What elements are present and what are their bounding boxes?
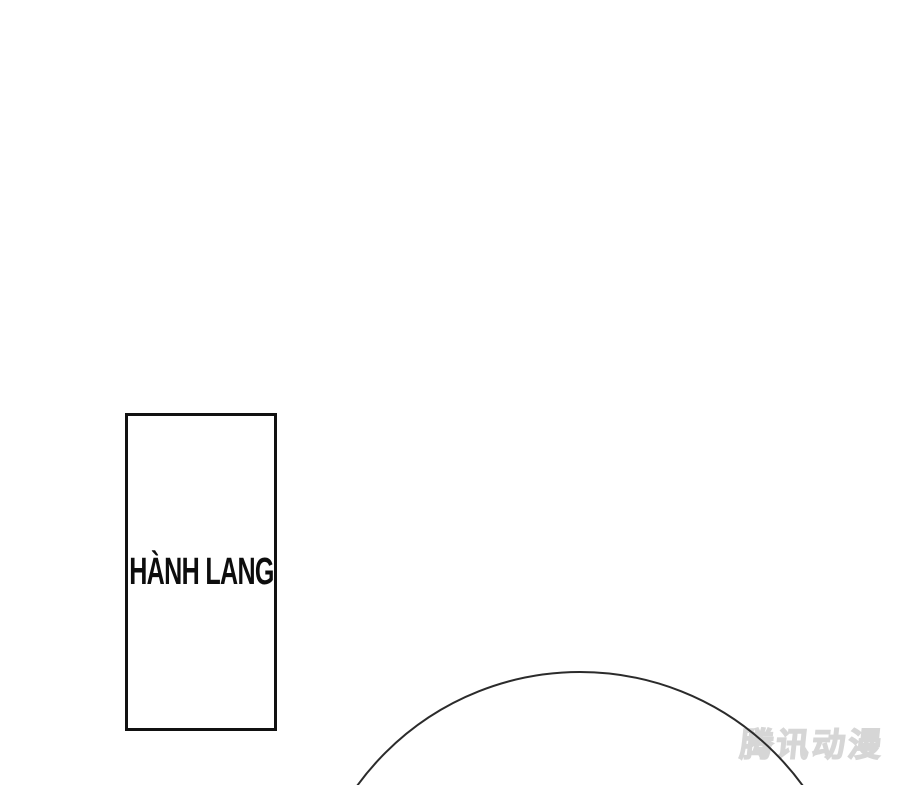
- tencent-comics-watermark: 腾讯动漫: [738, 726, 892, 766]
- caption-text: HÀNH LANG: [129, 553, 274, 591]
- caption-box: HÀNH LANG: [125, 413, 277, 731]
- comic-page: 腾讯动漫 HÀNH LANG: [0, 0, 900, 785]
